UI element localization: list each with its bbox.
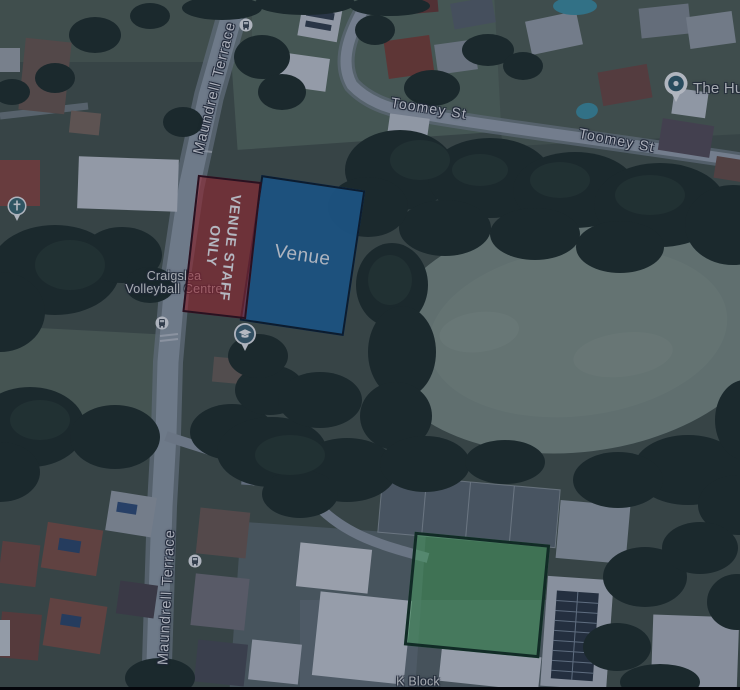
- satellite-terrain: [0, 0, 740, 690]
- venue-staff-only-label: VENUE STAFF ONLY: [199, 192, 245, 302]
- church-pin-icon[interactable]: [6, 196, 28, 227]
- map-canvas[interactable]: Maundrell Terrace Maundrell Terrace Toom…: [0, 0, 740, 690]
- green-area-zone-overlay: [404, 532, 550, 659]
- bus-stop-icon[interactable]: [239, 18, 253, 37]
- bus-stop-icon[interactable]: [155, 316, 169, 335]
- bus-stop-icon[interactable]: [188, 554, 202, 573]
- place-pin-icon[interactable]: [663, 71, 689, 108]
- school-pin-icon[interactable]: [232, 322, 258, 357]
- poi-label-the-hub: The Hu: [693, 82, 740, 95]
- venue-zone-label: Venue: [273, 240, 332, 270]
